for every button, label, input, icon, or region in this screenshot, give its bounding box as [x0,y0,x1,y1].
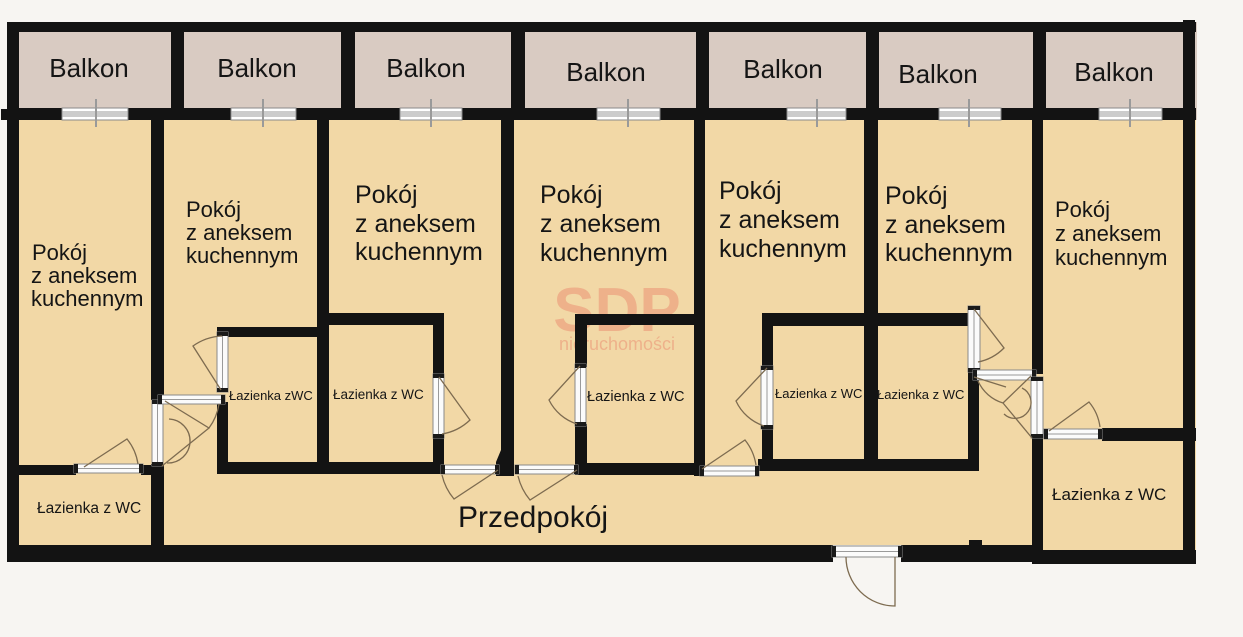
svg-text:Pokój: Pokój [1055,197,1110,222]
svg-text:Pokój: Pokój [719,177,782,205]
svg-text:kuchennym: kuchennym [355,238,483,266]
svg-text:Pokój: Pokój [355,181,418,209]
svg-text:kuchennym: kuchennym [885,239,1013,267]
svg-text:Balkon: Balkon [217,53,297,83]
svg-text:Łazienka z WC: Łazienka z WC [877,387,964,402]
svg-text:Łazienka z WC: Łazienka z WC [587,389,685,405]
svg-text:Łazienka z WC: Łazienka z WC [1052,485,1166,504]
svg-text:Balkon: Balkon [743,54,823,84]
svg-text:Łazienka z WC: Łazienka z WC [333,387,424,402]
svg-text:kuchennym: kuchennym [31,286,144,311]
svg-text:Pokój: Pokój [885,182,948,210]
svg-text:z aneksem: z aneksem [885,211,1006,239]
svg-text:z aneksem: z aneksem [1055,221,1161,246]
svg-text:Przedpokój: Przedpokój [458,501,608,534]
svg-text:z aneksem: z aneksem [31,263,137,288]
svg-text:Balkon: Balkon [566,57,646,87]
svg-text:kuchennym: kuchennym [186,243,299,268]
svg-text:Balkon: Balkon [898,59,978,89]
svg-text:Pokój: Pokój [540,181,603,209]
svg-text:Balkon: Balkon [1074,57,1154,87]
svg-text:Balkon: Balkon [49,53,129,83]
svg-text:z aneksem: z aneksem [355,210,476,238]
svg-text:Łazienka zWC: Łazienka zWC [229,388,313,403]
svg-text:kuchennym: kuchennym [1055,245,1168,270]
svg-text:Pokój: Pokój [32,240,87,265]
svg-text:z aneksem: z aneksem [186,220,292,245]
svg-text:Pokój: Pokój [186,197,241,222]
svg-text:Balkon: Balkon [386,53,466,83]
svg-text:Łazienka z WC: Łazienka z WC [775,386,862,401]
svg-text:z aneksem: z aneksem [719,206,840,234]
svg-text:z aneksem: z aneksem [540,210,661,238]
svg-text:Łazienka z WC: Łazienka z WC [37,500,141,517]
svg-text:kuchennym: kuchennym [719,235,847,263]
svg-text:kuchennym: kuchennym [540,239,668,267]
